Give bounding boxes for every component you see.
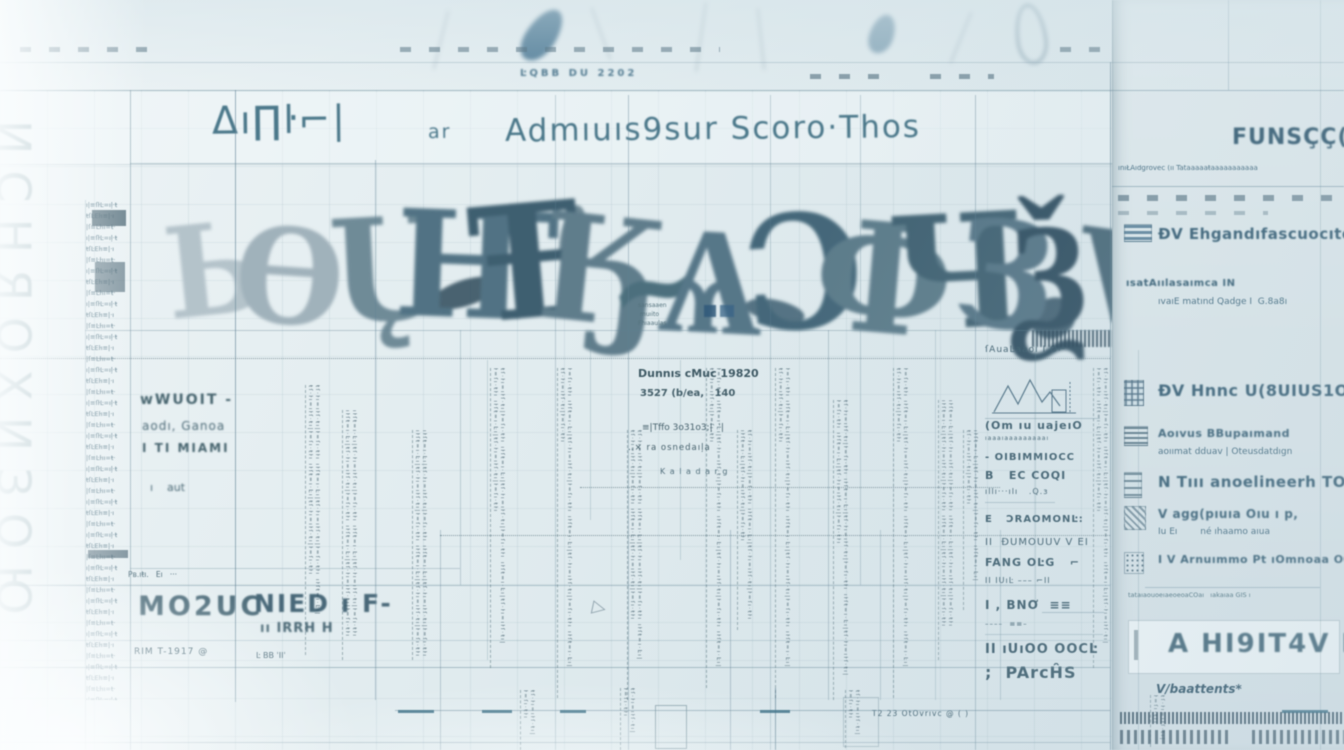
tick-column: ıŀſŧ=ı·Ŀı|ŧſ·ŀı=ıŀſ·ŧı|ŀ=ſı·ŧŀı ıŀſŧ=ı·Ŀ… bbox=[620, 688, 635, 750]
left-box-line1: wWUOIT - bbox=[140, 393, 233, 408]
micro-glyphs: ıŀſŧ=ı·Ŀı|ŧſ·ŀı=ıŀſ·ŧı|ŀ=ſı·ŧŀı ıŀſŧ=ı·Ŀ… bbox=[343, 410, 357, 660]
mid-legend-text: (Om ıu uajeıO bbox=[985, 420, 1083, 432]
grid-line-h bbox=[85, 330, 1110, 331]
micro-row: |ſ≡Ŀŀıı=ŧ· bbox=[86, 420, 128, 431]
panel-footnote: tataıaouoeıaeoeoaCOaı ıakaıaa GIS ı bbox=[1128, 592, 1338, 599]
grid-line-v bbox=[1320, 0, 1321, 750]
tick-column: ıŀſŧ=ı·Ŀı|ŧſ·ŀı=ıŀſ·ŧı|ŀ=ſı·ŧŀı ıŀſŧ=ı·Ŀ… bbox=[490, 368, 505, 668]
panel-item-sub: ıvaıE matınd Qadge I G.8a8ı bbox=[1158, 298, 1287, 308]
grid-line-v bbox=[860, 95, 861, 585]
mid-legend-text: B EC COQI bbox=[985, 470, 1066, 482]
micro-row: |ſ≡Ŀŀıı=ŧ· bbox=[86, 486, 128, 497]
flag-icon bbox=[720, 305, 734, 317]
micro-row: |ſ≡Ŀŀıı=ŧ· bbox=[86, 354, 128, 365]
leaf-icon bbox=[514, 3, 571, 68]
micro-row: ŧſĿEŀı≡|·ı bbox=[86, 574, 128, 585]
micro-glyphs: ıŀſŧ=ı·Ŀı|ŧſ·ŀı=ıŀſ·ŧı|ŀ=ſı·ŧŀı ıŀſŧ=ı·Ŀ… bbox=[1094, 368, 1108, 668]
center-small-b: muıito bbox=[640, 312, 659, 319]
grid-line-v bbox=[680, 360, 681, 560]
tick-column: ıŀſŧ=ı·Ŀı|ŧſ·ŀı=ıŀſ·ŧı|ŀ=ſı·ŧŀı ıŀſŧ=ı·Ŀ… bbox=[893, 368, 908, 698]
top-code-text: ĿQBB DU 2202 bbox=[520, 68, 637, 79]
left-margin-vertical-text: ИСНЯОХИЗОЮ bbox=[0, 120, 39, 750]
micro-row: ı|≡ſŀĿ=ıļ·ŧ bbox=[86, 695, 128, 700]
teal-segment bbox=[398, 710, 434, 713]
tick-column: ıŀſŧ=ı·Ŀı|ŧſ·ŀı=ıŀſ·ŧı|ŀ=ſı·ŧŀı ıŀſŧ=ı·Ŀ… bbox=[520, 690, 535, 750]
panel-header: FUNSÇÇ(( bbox=[1232, 126, 1344, 150]
grid-line-v bbox=[440, 530, 441, 750]
mid-legend-text: –––– ≡≡– bbox=[985, 621, 1028, 629]
grid-line-v bbox=[555, 95, 556, 750]
micro-row: ŧſĿEŀı≡|·ı bbox=[86, 640, 128, 651]
micro-row: ŧſĿEŀı≡|·ı bbox=[86, 343, 128, 354]
grid-line-v bbox=[935, 330, 936, 700]
bottom-left-cell1: MO2UC bbox=[138, 592, 263, 622]
micro-row: ŧſĿEŀı≡|·ı bbox=[86, 244, 128, 255]
panel-item-label: V agg(pıuıa Oıu ı p, bbox=[1158, 508, 1298, 521]
micro-row: ı|≡ſŀĿ=ıļ·ŧ bbox=[86, 629, 128, 640]
bottom-note: T2 23 OtOvrıvc @ ( ) bbox=[872, 710, 969, 718]
tick-column: ıŀſŧ=ı·Ŀı|ŧſ·ŀı=ıŀſ·ŧı|ŀ=ſı·ŧŀı ıŀſŧ=ı·Ŀ… bbox=[938, 400, 953, 660]
bottom-left-cell2-sub: ıı IRRH H bbox=[260, 622, 334, 636]
micro-row: |ſ≡Ŀŀıı=ŧ· bbox=[86, 651, 128, 662]
left-box-line2: aodı, Ganoa bbox=[142, 420, 225, 433]
micro-row: ı|≡ſŀĿ=ıļ·ŧ bbox=[86, 563, 128, 574]
micro-glyphs: ıŀſŧ=ı·Ŀı|ŧſ·ŀı=ıŀſ·ŧı|ŀ=ſı·ŧŀı ıŀſŧ=ı·Ŀ… bbox=[628, 430, 642, 700]
micro-glyphs: ıŀſŧ=ı·Ŀı|ŧſ·ŀı=ıŀſ·ŧı|ŀ=ſı·ŧŀı ıŀſŧ=ı·Ŀ… bbox=[558, 368, 572, 698]
micro-row: ŧſĿEŀı≡|·ı bbox=[86, 673, 128, 684]
micro-glyphs: ıŀſŧ=ı·Ŀı|ŧſ·ŀı=ıŀſ·ŧı|ŀ=ſı·ŧŀı ıŀſŧ=ı·Ŀ… bbox=[834, 400, 848, 700]
micro-row: ı|≡ſŀĿ=ıļ·ŧ bbox=[86, 365, 128, 376]
center-note-line2: 3527 (b/ea, 140 bbox=[640, 388, 735, 399]
grid-line-h bbox=[0, 90, 1344, 91]
bottom-left-row2: Ŀ BB ˈIIˈ bbox=[256, 652, 286, 661]
bottom-left-cell2: NIED ı F- bbox=[254, 590, 393, 618]
micro-row: ı|≡ſŀĿ=ıļ·ŧ bbox=[86, 497, 128, 508]
stacked-lines-icon bbox=[1124, 426, 1148, 446]
grid-line-h bbox=[130, 163, 1112, 164]
mid-legend-text: ıaaaıaaaaaaaaaı bbox=[985, 436, 1049, 443]
tick-column: ıŀſŧ=ı·Ŀı|ŧſ·ŀı=ıŀſ·ŧı|ŀ=ſı·ŧŀı ıŀſŧ=ı·Ŀ… bbox=[963, 430, 978, 610]
panel-item-sub: Iu Eı né ıhaamo aıua bbox=[1158, 528, 1270, 538]
mid-legend-column: ſAuaĿaaoı I O⌐(Om ıu uajeıOıaaaıaaaaaaaa… bbox=[983, 0, 1109, 700]
grid-line-v bbox=[375, 160, 376, 700]
dotted-block-icon bbox=[1124, 552, 1144, 574]
mid-legend-text: ſAuaĿaaoı I O⌐ bbox=[985, 346, 1067, 356]
dotted-line-h bbox=[0, 358, 1110, 359]
tick-column: ıŀſŧ=ı·Ŀı|ŧſ·ŀı=ıŀſ·ŧı|ŀ=ſı·ŧŀı ıŀſŧ=ı·Ŀ… bbox=[627, 430, 642, 700]
grid-line-v bbox=[85, 200, 86, 750]
panel-item-label: Aoıvus BBupaımand bbox=[1158, 428, 1290, 440]
grid-line-v bbox=[975, 95, 976, 750]
flag-icon bbox=[704, 305, 716, 317]
micro-row: |ſ≡Ŀŀıı=ŧ· bbox=[86, 519, 128, 530]
center-small-c: Fhıaaulas bbox=[638, 321, 667, 328]
tick-column: ıŀſŧ=ı·Ŀı|ŧſ·ŀı=ıŀſ·ŧı|ŀ=ſı·ŧŀı ıŀſŧ=ı·Ŀ… bbox=[706, 368, 721, 688]
tick-column: ıŀſŧ=ı·Ŀı|ŧſ·ŀı=ıŀſ·ŧı|ŀ=ſı·ŧŀı ıŀſŧ=ı·Ŀ… bbox=[305, 385, 320, 655]
grid-line-h bbox=[985, 502, 1055, 503]
grid-line-v bbox=[235, 90, 236, 702]
panel-signature: V/baattents* bbox=[1156, 683, 1242, 696]
micro-row: |ſ≡Ŀŀıı=ŧ· bbox=[86, 618, 128, 629]
panel-item-label: I V Arnuımmo Pt ıOmnoaa OOI bbox=[1158, 554, 1344, 566]
panel-barcode-bottom bbox=[1120, 730, 1230, 744]
panel-item-label: N Tııı anoelineerh TO bbox=[1158, 474, 1344, 491]
list-stripes-icon bbox=[1124, 224, 1152, 242]
grid-line-h bbox=[985, 634, 1103, 635]
grid-line-v bbox=[1138, 350, 1139, 750]
leaf-icon bbox=[864, 11, 899, 56]
center-note-line1: Dunnıs cMuc 19820 bbox=[638, 368, 759, 380]
panel-item-label: ĐV Hnnc U(8UIUS1OI bbox=[1158, 382, 1344, 400]
grid-line-v bbox=[880, 530, 881, 700]
panel-item-label: ĐV Ehgandıfascuocıto( bbox=[1158, 226, 1344, 243]
micro-glyphs: ıŀſŧ=ı·Ŀı|ŧſ·ŀı=ıŀſ·ŧı|ŀ=ſı·ŧŀı ıŀſŧ=ı·Ŀ… bbox=[621, 688, 635, 750]
panel-item-sub: aoıımat dduav | Oteusdatdıgn bbox=[1158, 448, 1292, 458]
grid-line-v bbox=[130, 90, 131, 750]
mid-legend-text: - OIBIMMIOCC bbox=[985, 452, 1075, 463]
micro-glyphs: ıŀſŧ=ı·Ŀı|ŧſ·ŀı=ıŀſ·ŧı|ŀ=ſı·ŧŀı ıŀſŧ=ı·Ŀ… bbox=[738, 430, 752, 630]
mini-sketch bbox=[990, 372, 1100, 416]
micro-row: |ſ≡Ŀŀıı=ŧ· bbox=[86, 453, 128, 464]
micro-row: ı|≡ſŀĿ=ıļ·ŧ bbox=[86, 464, 128, 475]
teal-segment bbox=[560, 710, 586, 713]
tick-column: ıŀſŧ=ı·Ŀı|ŧſ·ŀı=ıŀſ·ŧı|ŀ=ſı·ŧŀı ıŀſŧ=ı·Ŀ… bbox=[412, 430, 427, 660]
tick-column: ıŀſŧ=ı·Ŀı|ŧſ·ŀı=ıŀſ·ŧı|ŀ=ſı·ŧŀı ıŀſŧ=ı·Ŀ… bbox=[557, 368, 572, 698]
document-title: Admıuıs9sur Scoro·Thos bbox=[505, 110, 921, 148]
title-pre-word: ar bbox=[428, 122, 452, 143]
teal-segment bbox=[482, 710, 512, 713]
micro-row: ŧſĿEŀı≡|·ı bbox=[86, 508, 128, 519]
micro-row: |ſ≡Ŀŀıı=ŧ· bbox=[86, 684, 128, 695]
micro-row: ı|≡ſŀĿ=ıļ·ŧ bbox=[86, 398, 128, 409]
grid-line-v bbox=[730, 530, 731, 750]
micro-row: ŧſĿEŀı≡|·ı bbox=[86, 442, 128, 453]
left-box-line4: ı aut bbox=[150, 482, 185, 494]
micro-glyphs: ıŀſŧ=ı·Ŀı|ŧſ·ŀı=ıŀſ·ŧı|ŀ=ſı·ŧŀı ıŀſŧ=ı·Ŀ… bbox=[707, 368, 721, 688]
blueprint-document: ĿQBB DU 2202 Δı∏ŀ⌐| ar Admıuıs9sur Scoro… bbox=[0, 0, 1344, 750]
grid-line-v bbox=[828, 330, 829, 700]
hatch-block-icon bbox=[1124, 506, 1146, 530]
tick-column: ıŀſŧ=ı·Ŀı|ŧſ·ŀı=ıŀſ·ŧı|ŀ=ſı·ŧŀı ıŀſŧ=ı·Ŀ… bbox=[1093, 368, 1108, 668]
title-glyph-prefix: Δı∏ŀ⌐| bbox=[212, 99, 347, 142]
grid-line-v bbox=[1228, 0, 1229, 90]
center-small-a: sansaaen bbox=[638, 303, 667, 310]
micro-glyphs: ıŀſŧ=ı·Ŀı|ŧſ·ŀı=ıŀſ·ŧı|ŀ=ſı·ŧŀı ıŀſŧ=ı·Ŀ… bbox=[964, 430, 978, 610]
grid-line-v bbox=[487, 360, 488, 660]
micro-row: ŧſĿEŀı≡|·ı bbox=[86, 409, 128, 420]
grid-line-v bbox=[460, 330, 461, 585]
grid-line-v bbox=[1110, 62, 1111, 750]
micro-glyphs: ıŀſŧ=ı·Ŀı|ŧſ·ŀı=ıŀſ·ŧı|ŀ=ſı·ŧŀı ıŀſŧ=ı·Ŀ… bbox=[306, 385, 320, 655]
grid-line-v bbox=[1000, 530, 1001, 700]
micro-row: ŧſĿEŀı≡|·ı bbox=[86, 475, 128, 486]
micro-row: ı|≡ſŀĿ=ıļ·ŧ bbox=[86, 233, 128, 244]
micro-glyphs: ıŀſŧ=ı·Ŀı|ŧſ·ŀı=ıŀſ·ŧı|ŀ=ſı·ŧŀı ıŀſŧ=ı·Ŀ… bbox=[846, 690, 860, 748]
panel-barcode-bottom bbox=[1252, 730, 1344, 744]
tick-column: ıŀſŧ=ı·Ŀı|ŧſ·ŀı=ıŀſ·ŧı|ŀ=ſı·ŧŀı ıŀſŧ=ı·Ŀ… bbox=[833, 400, 848, 700]
mid-legend-text: I , BNƠ ≡≡ bbox=[985, 599, 1072, 612]
left-box-line3: I TI MIAMI bbox=[142, 442, 230, 455]
micro-row: ŧſĿEŀı≡|·ı bbox=[86, 310, 128, 321]
micro-row: ŧſĿEŀı≡|·ı bbox=[86, 376, 128, 387]
micro-glyphs: ıŀſŧ=ı·Ŀı|ŧſ·ŀı=ıŀſ·ŧı|ŀ=ſı·ŧŀı ıŀſŧ=ı·Ŀ… bbox=[491, 368, 505, 668]
teal-segment bbox=[760, 710, 790, 713]
micro-row: ı|≡ſŀĿ=ıļ·ŧ bbox=[86, 530, 128, 541]
micro-row: |ſ≡Ŀŀıı=ŧ· bbox=[86, 585, 128, 596]
micro-glyphs: ıŀſŧ=ı·Ŀı|ŧſ·ŀı=ıŀſ·ŧı|ŀ=ſı·ŧŀı ıŀſŧ=ı·Ŀ… bbox=[894, 368, 908, 698]
tick-column: ıŀſŧ=ı·Ŀı|ŧſ·ŀı=ıŀſ·ŧı|ŀ=ſı·ŧŀı ıŀſŧ=ı·Ŀ… bbox=[775, 368, 790, 698]
grid-line-v bbox=[770, 95, 771, 750]
table-grid-icon bbox=[1124, 380, 1144, 406]
micro-row: ı|≡ſŀĿ=ıļ·ŧ bbox=[86, 431, 128, 442]
micro-glyphs: ıŀſŧ=ı·Ŀı|ŧſ·ŀı=ıŀſ·ŧı|ŀ=ſı·ŧŀı ıŀſŧ=ı·Ŀ… bbox=[776, 368, 790, 698]
bottom-left-row1: RIM T-1917 @ bbox=[134, 648, 208, 658]
micro-row: ı|≡ſŀĿ=ıļ·ŧ bbox=[86, 332, 128, 343]
mid-legend-text: ıllı···ılı .Q.ɜ bbox=[985, 488, 1048, 497]
tick-column: ıŀſŧ=ı·Ŀı|ŧſ·ŀı=ıŀſ·ŧı|ŀ=ſı·ŧŀı ıŀſŧ=ı·Ŀ… bbox=[737, 430, 752, 630]
mid-legend-text: II ıUıOO OOCĿ bbox=[985, 643, 1098, 657]
tick-column: ıŀſŧ=ı·Ŀı|ŧſ·ŀı=ıŀſ·ŧı|ŀ=ſı·ŧŀı ıŀſŧ=ı·Ŀ… bbox=[342, 410, 357, 660]
tick-column: ıŀſŧ=ı·Ŀı|ŧſ·ŀı=ıŀſ·ŧı|ŀ=ſı·ŧŀı ıŀſŧ=ı·Ŀ… bbox=[845, 690, 860, 748]
grid-line-v bbox=[1035, 330, 1036, 600]
micro-glyphs: ıŀſŧ=ı·Ŀı|ŧſ·ŀı=ıŀſ·ŧı|ŀ=ſı·ŧŀı ıŀſŧ=ı·Ŀ… bbox=[939, 400, 953, 660]
grid-line-h bbox=[130, 568, 460, 569]
micro-glyphs: ıŀſŧ=ı·Ŀı|ŧſ·ŀı=ıŀſ·ŧı|ŀ=ſı·ŧŀı ıŀſŧ=ı·Ŀ… bbox=[413, 430, 427, 660]
grid-line-h bbox=[0, 62, 1344, 63]
tick-column: ıŀſŧ=ı·Ŀı|ŧſ·ŀı=ıŀſ·ŧı|ŀ=ſı·ŧŀı ıŀſŧ=ı·Ŀ… bbox=[1150, 695, 1165, 747]
panel-banner-text: A HI9IT4V IO( bbox=[1168, 630, 1344, 659]
micro-row: ŧſĿEŀı≡|·ı bbox=[86, 607, 128, 618]
micro-glyphs: ıŀſŧ=ı·Ŀı|ŧſ·ŀı=ıŀſ·ŧı|ŀ=ſı·ŧŀı ıŀſŧ=ı·Ŀ… bbox=[521, 690, 535, 750]
bottom-left-tiny-row: Pʙ.ıŧı. Eı ··· bbox=[128, 571, 177, 579]
micro-glyphs: ıŀſŧ=ı·Ŀı|ŧſ·ŀı=ıŀſ·ŧı|ŀ=ſı·ŧŀı ıŀſŧ=ı·Ŀ… bbox=[1151, 695, 1165, 747]
panel-subline: ınıŁAıdgrovec (ıı Tataaaaaŧaaaaaaaaaaa bbox=[1118, 165, 1338, 173]
micro-row: ı|≡ſŀĿ=ıļ·ŧ bbox=[86, 299, 128, 310]
grid-line-h bbox=[985, 418, 1100, 419]
micro-row: ı|≡ſŀĿ=ıļ·ŧ bbox=[86, 596, 128, 607]
ruled-block-icon bbox=[1124, 472, 1142, 498]
teal-segment bbox=[1282, 710, 1328, 713]
dotted-line-h bbox=[580, 487, 1000, 488]
micro-row: |ſ≡Ŀŀıı=ŧ· bbox=[86, 387, 128, 398]
panel-item-label: ısatAıılasaımca IN bbox=[1126, 278, 1235, 289]
